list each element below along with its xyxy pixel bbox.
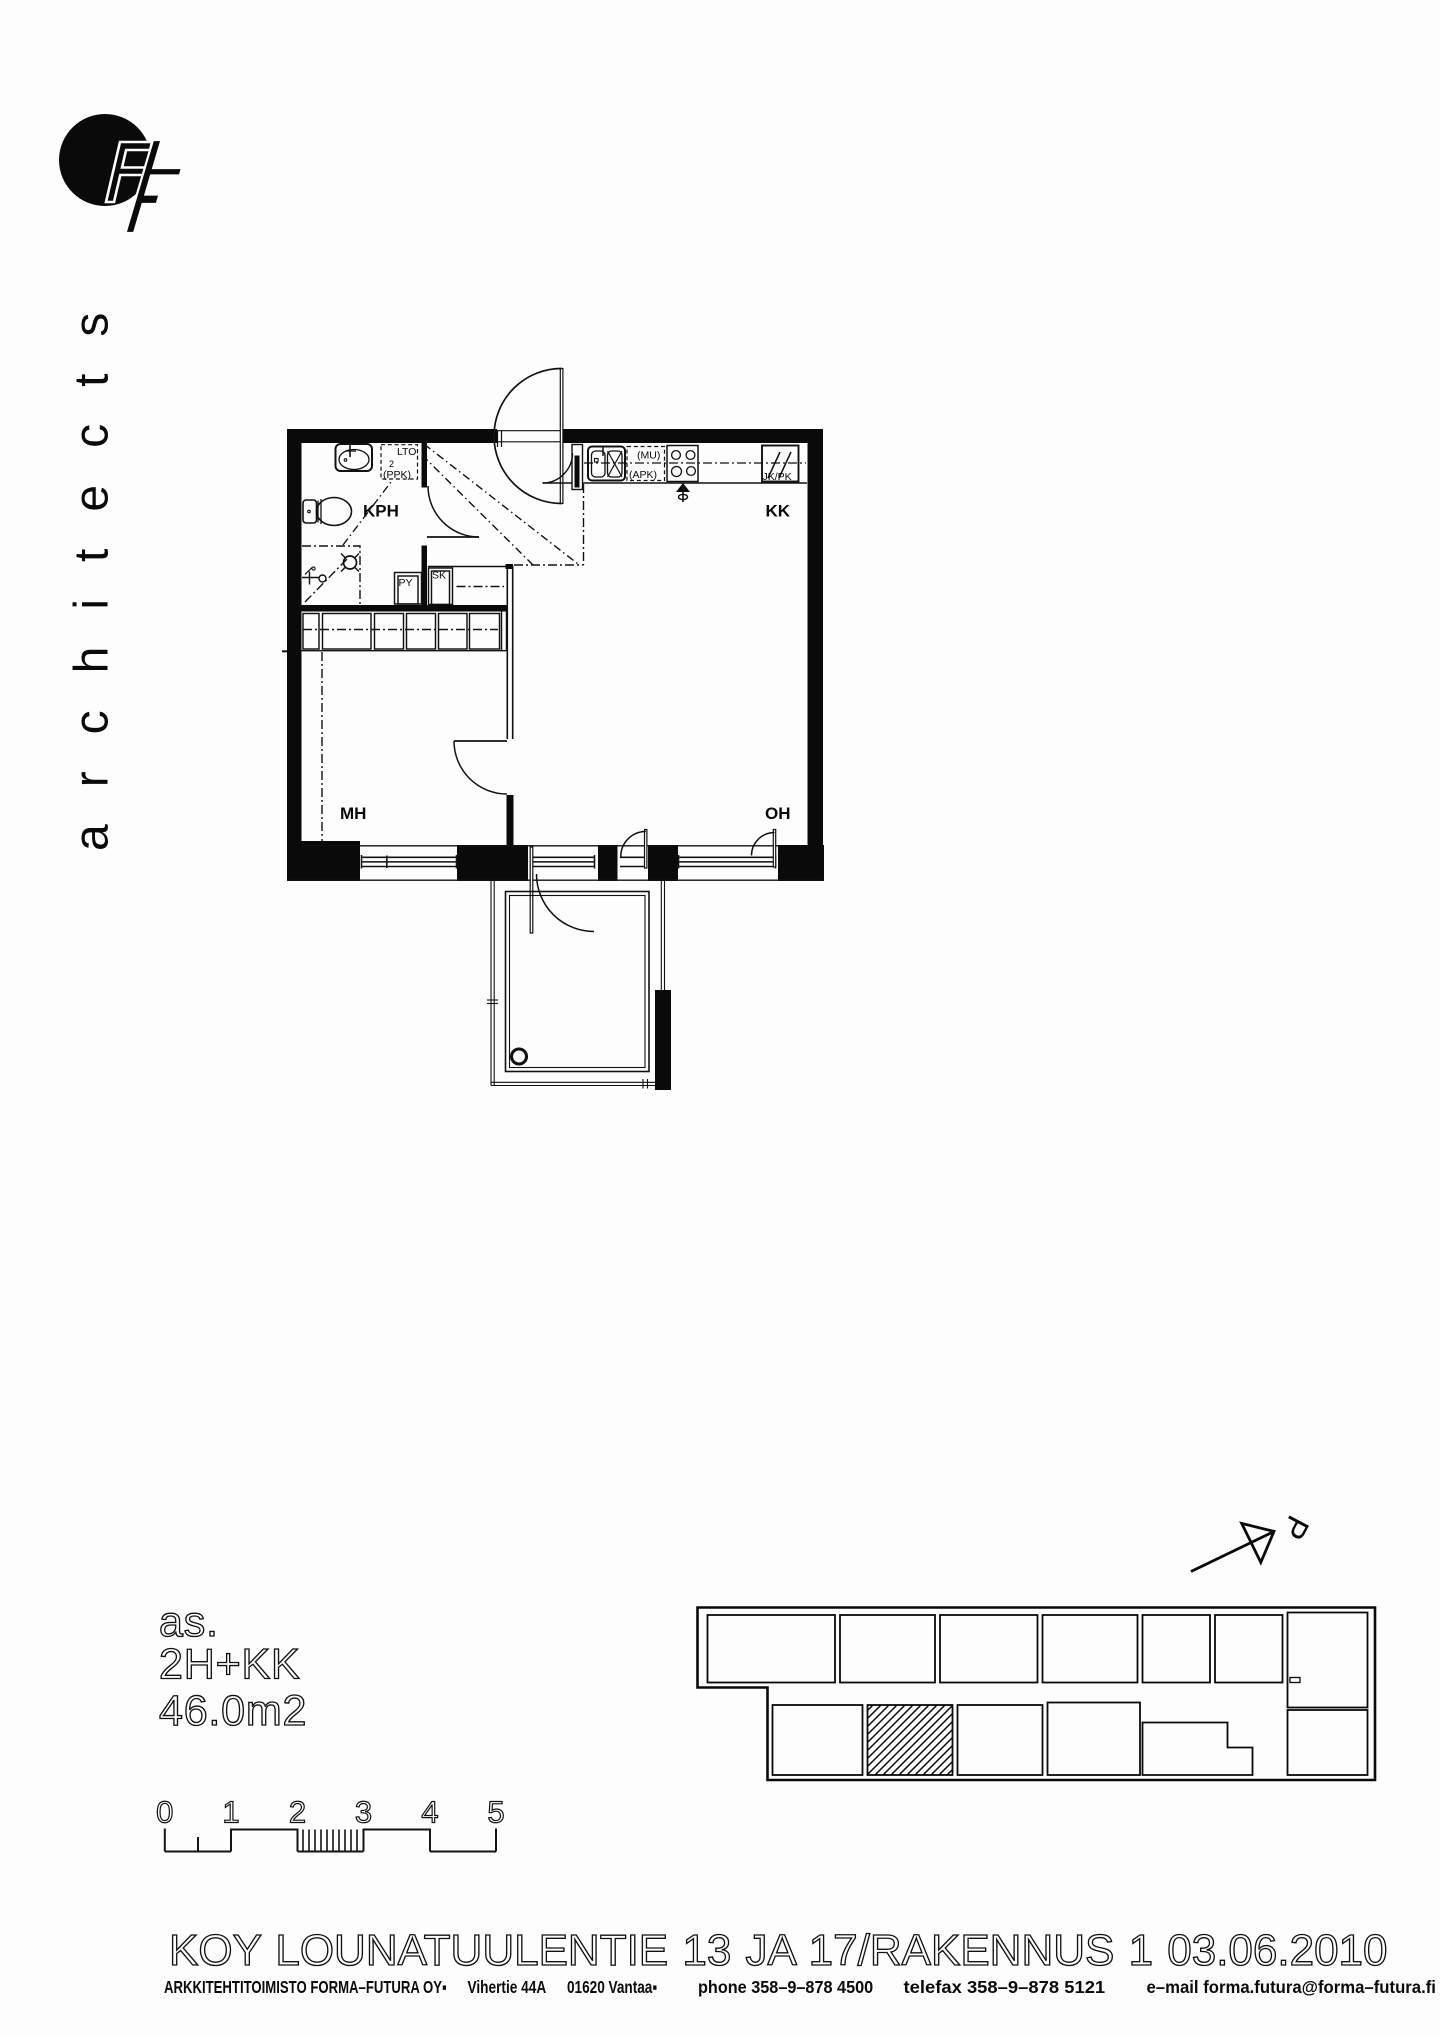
svg-text:4: 4	[421, 1795, 438, 1830]
svg-text:architects: architects	[66, 276, 119, 851]
svg-text:as.: as.	[159, 1598, 219, 1646]
svg-text:2: 2	[289, 1795, 306, 1830]
svg-text:3: 3	[355, 1795, 372, 1830]
svg-text:phone 358–9–878 4500: phone 358–9–878 4500	[698, 1977, 873, 1997]
svg-text:0: 0	[156, 1795, 173, 1830]
svg-text:KK: KK	[766, 502, 791, 521]
svg-text:SK: SK	[432, 570, 446, 582]
svg-text:P: P	[1274, 1510, 1316, 1546]
svg-text:JK/PK: JK/PK	[763, 471, 792, 483]
svg-text:ARKKITEHTITOIMISTO FORMA–FUTUR: ARKKITEHTITOIMISTO FORMA–FUTURA OY▪	[164, 1978, 447, 1997]
svg-text:KOY LOUNATUULENTIE 13 JA 17/RA: KOY LOUNATUULENTIE 13 JA 17/RAKENNUS 1 0…	[169, 1926, 1387, 1975]
svg-text:LTO: LTO	[397, 446, 416, 458]
svg-text:46.0m2: 46.0m2	[159, 1687, 307, 1735]
svg-text:2: 2	[389, 459, 394, 469]
svg-text:1: 1	[222, 1795, 239, 1830]
svg-text:telefax 358–9–878 5121: telefax 358–9–878 5121	[904, 1977, 1106, 1996]
svg-text:(MU): (MU)	[637, 450, 660, 462]
svg-text:OH: OH	[765, 804, 791, 823]
svg-text:PY: PY	[399, 577, 413, 589]
svg-text:Vihertie 44A: Vihertie 44A	[468, 1979, 547, 1998]
svg-text:(APK): (APK)	[629, 469, 657, 481]
svg-text:(PPK): (PPK)	[383, 469, 411, 481]
svg-text:01620 Vantaa▪: 01620 Vantaa▪	[567, 1978, 657, 1997]
svg-text:5: 5	[487, 1795, 504, 1830]
svg-text:KPH: KPH	[363, 502, 399, 521]
svg-text:MH: MH	[340, 804, 366, 823]
svg-text:e–mail forma.futura@forma–futu: e–mail forma.futura@forma–futura.fi	[1147, 1978, 1436, 1997]
svg-text:2H+KK: 2H+KK	[159, 1641, 300, 1689]
